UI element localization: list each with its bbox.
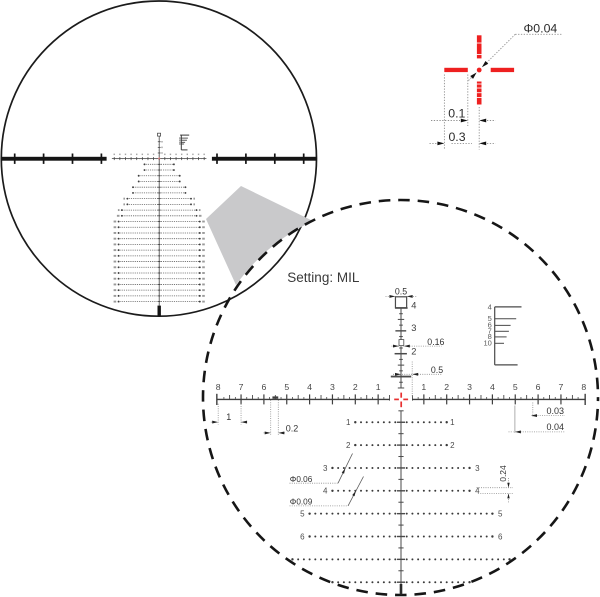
svg-text:6: 6 (300, 532, 305, 541)
svg-text:4: 4 (488, 302, 492, 311)
svg-text:3: 3 (323, 464, 328, 473)
svg-text:5: 5 (513, 382, 518, 392)
svg-text:10: 10 (483, 339, 491, 348)
svg-text:0.3: 0.3 (448, 130, 465, 144)
svg-text:6: 6 (261, 382, 266, 392)
svg-text:1: 1 (421, 382, 426, 392)
svg-text:3: 3 (475, 464, 480, 473)
svg-text:4: 4 (411, 300, 416, 310)
svg-text:1: 1 (346, 418, 351, 427)
svg-text:Φ0.06: Φ0.06 (290, 475, 313, 484)
svg-text:2: 2 (444, 382, 449, 392)
svg-text:0.04: 0.04 (547, 422, 565, 432)
svg-text:3: 3 (467, 382, 472, 392)
svg-text:2: 2 (450, 441, 455, 450)
svg-text:4: 4 (490, 382, 495, 392)
svg-text:0.5: 0.5 (395, 286, 407, 296)
svg-text:6: 6 (536, 382, 541, 392)
svg-text:6: 6 (498, 532, 503, 541)
svg-text:3: 3 (330, 382, 335, 392)
svg-text:Φ0.09: Φ0.09 (290, 498, 313, 507)
svg-text:0.5: 0.5 (431, 365, 443, 375)
svg-text:0.03: 0.03 (547, 406, 565, 416)
svg-text:5: 5 (284, 382, 289, 392)
svg-text:4: 4 (323, 487, 328, 496)
svg-text:0.24: 0.24 (498, 465, 508, 482)
svg-text:8: 8 (581, 382, 586, 392)
svg-text:5: 5 (498, 509, 503, 518)
svg-text:0.16: 0.16 (427, 337, 444, 347)
svg-text:4: 4 (307, 382, 312, 392)
svg-text:2: 2 (346, 441, 351, 450)
svg-text:Φ0.04: Φ0.04 (524, 22, 558, 36)
svg-text:7: 7 (559, 382, 564, 392)
svg-text:5: 5 (300, 509, 305, 518)
svg-text:7: 7 (239, 382, 244, 392)
svg-text:8: 8 (216, 382, 221, 392)
svg-text:2: 2 (353, 382, 358, 392)
svg-text:0.1: 0.1 (448, 107, 465, 121)
svg-text:1: 1 (226, 412, 231, 422)
svg-text:1: 1 (450, 418, 455, 427)
svg-text:Setting: MIL: Setting: MIL (287, 270, 360, 285)
svg-text:1: 1 (376, 382, 381, 392)
svg-text:0.2: 0.2 (286, 424, 299, 434)
svg-text:2: 2 (411, 347, 416, 357)
svg-text:3: 3 (411, 323, 416, 333)
